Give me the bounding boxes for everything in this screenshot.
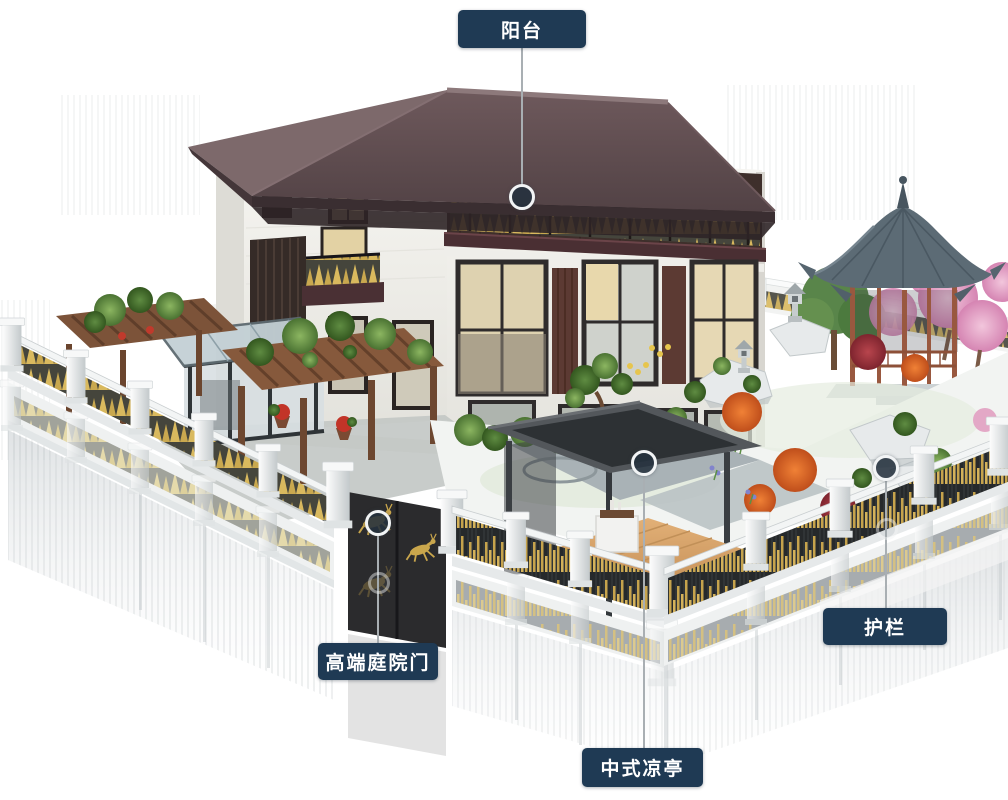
hotspot-marker-gate[interactable] [365, 510, 391, 536]
hotspot-marker-gate-reflection [368, 572, 390, 594]
callout-label-gate[interactable]: 高端庭院门 [318, 643, 438, 680]
hotspot-marker-pavilion[interactable] [631, 450, 657, 476]
villa-roof [188, 90, 775, 240]
hotspot-marker-railing[interactable] [873, 455, 899, 481]
tea-table [596, 516, 638, 552]
leader-line-pavilion [643, 476, 645, 748]
callout-label-railing[interactable]: 护栏 [823, 608, 947, 645]
leader-line-railing [885, 481, 887, 608]
hotspot-marker-balcony[interactable] [509, 184, 535, 210]
leader-line-balcony [521, 48, 523, 184]
callout-label-balcony[interactable]: 阳台 [458, 10, 586, 48]
hotspot-marker-railing-reflection [876, 518, 898, 540]
callout-label-pavilion[interactable]: 中式凉亭 [582, 748, 703, 787]
villa-scene-illustration [0, 0, 1008, 800]
annotated-villa-figure: 阳台 高端庭院门 中式凉亭 护栏 [0, 0, 1008, 800]
